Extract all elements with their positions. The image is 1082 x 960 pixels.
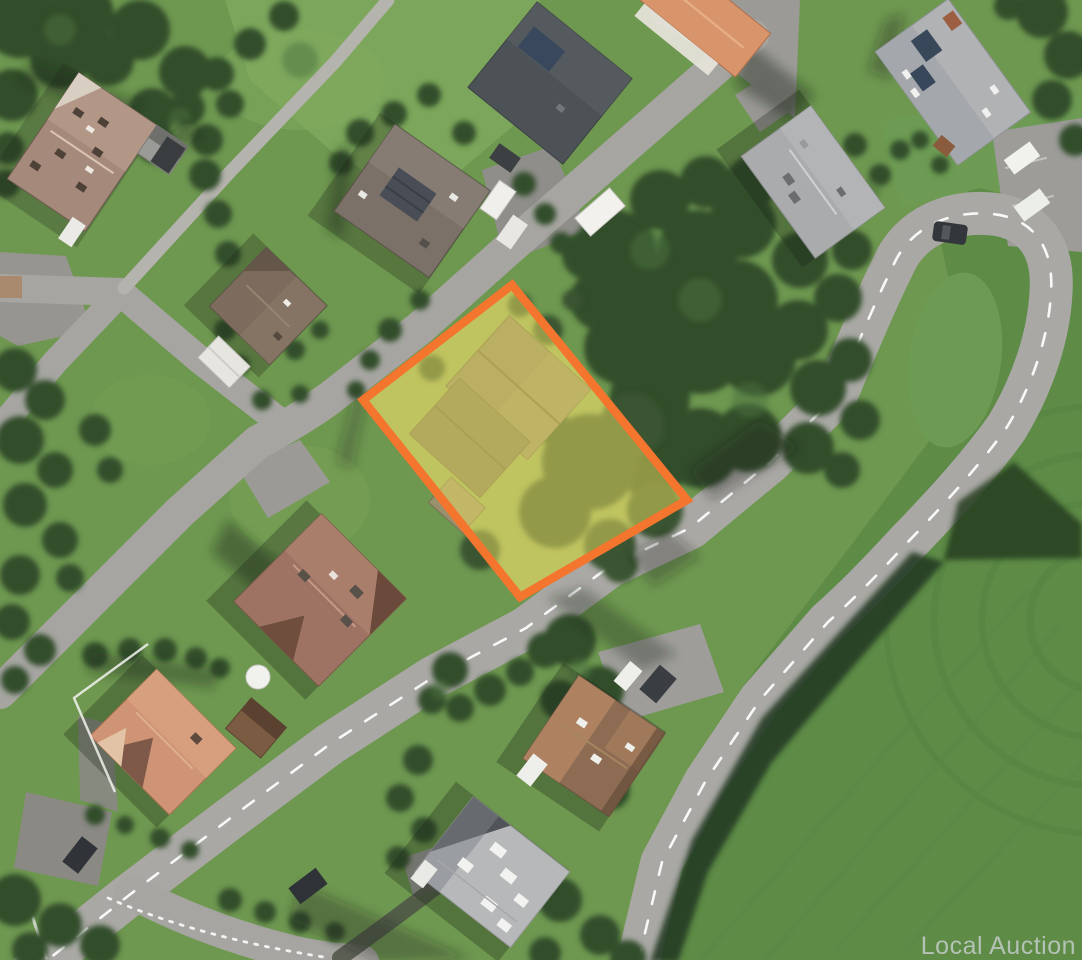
aerial-photo: Local Auction xyxy=(0,0,1082,960)
structure-left-edge xyxy=(0,276,22,298)
satellite-map: Local Auction xyxy=(0,0,1082,960)
satellite-dish xyxy=(246,665,270,689)
watermark-text: Local Auction xyxy=(921,932,1076,960)
grass-patch xyxy=(90,375,210,465)
